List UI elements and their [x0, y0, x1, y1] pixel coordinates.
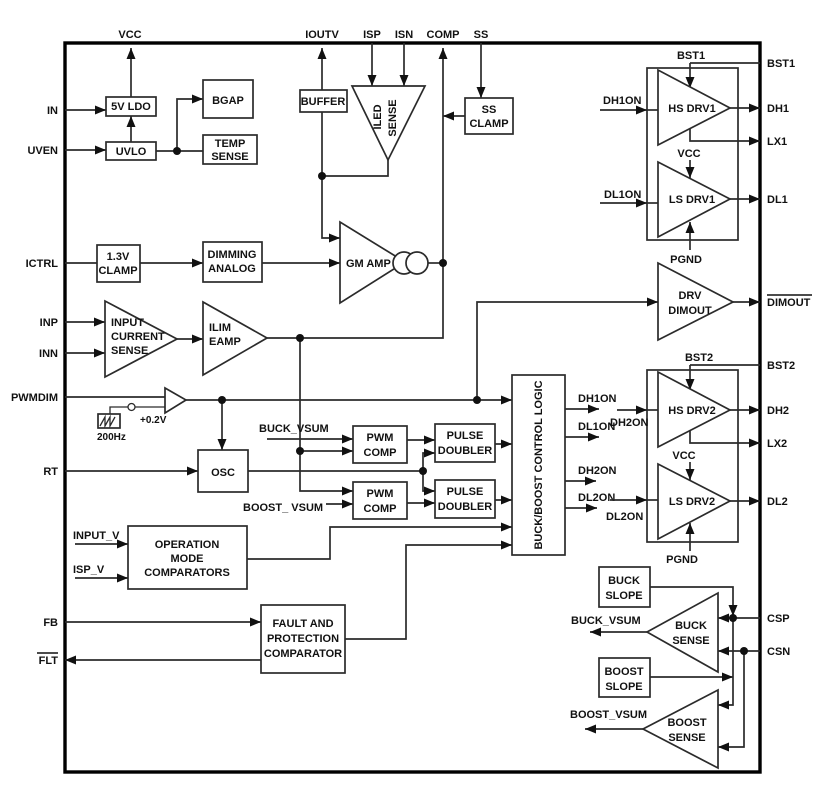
offset-node-icon [128, 404, 135, 411]
pin-isn: ISN [395, 29, 413, 41]
clamp-1v3-label: CLAMP [98, 265, 137, 277]
pin-isp: ISP [363, 29, 381, 41]
gm-amp-block: GM AMP [340, 222, 443, 303]
buck-vsum-label: BUCK_VSUM [259, 423, 329, 435]
osc-label: OSC [211, 467, 235, 479]
boost-sense-label: SENSE [668, 732, 705, 744]
ilim-eamp-label: ILIM [209, 322, 231, 334]
pins-right: BST1 DH1 LX1 DL1 DIMOUT BST2 DH2 LX2 DL2… [767, 58, 812, 658]
bst1-net-label: BST1 [677, 50, 705, 62]
boost-sense-amp [643, 690, 718, 768]
pins-top: VCC IOUTV ISP ISN COMP SS [118, 29, 488, 98]
sense-section: BUCK SLOPE BOOST SLOPE BUCK SENSE BUCK_V… [570, 567, 760, 768]
pin-fb: FB [43, 617, 58, 629]
driver2-block: BST2 HS DRV2 DH2ON VCC LS DRV2 DL2ON PGN… [606, 352, 760, 566]
pwm-comp1-label: COMP [364, 447, 397, 459]
buck-slope-label: BUCK [608, 575, 640, 587]
pin-uven: UVEN [27, 145, 58, 157]
input-current-sense-label: INPUT [111, 317, 144, 329]
boost-vsum-out-label: BOOST_VSUM [570, 709, 647, 721]
buffer-label: BUFFER [301, 96, 346, 108]
bgap-label: BGAP [212, 95, 244, 107]
temp-sense-label: SENSE [211, 151, 248, 163]
pin-lx2: LX2 [767, 438, 787, 450]
dh1on-in-label: DH1ON [603, 95, 642, 107]
pin-bst1: BST1 [767, 58, 795, 70]
dl1on-in-label: DL1ON [604, 189, 641, 201]
ic-block-diagram: VCC IOUTV ISP ISN COMP SS IN UVEN ICTRL … [0, 0, 820, 807]
buck-sense-label: SENSE [672, 635, 709, 647]
boost-slope-label: SLOPE [605, 681, 642, 693]
pin-csp: CSP [767, 613, 790, 625]
ss-clamp-label: CLAMP [469, 118, 508, 130]
pin-bst2: BST2 [767, 360, 795, 372]
dl2on-out-label: DL2ON [578, 492, 615, 504]
pulse-doubler1-label: DOUBLER [438, 445, 492, 457]
temp-sense-label: TEMP [215, 138, 246, 150]
bst2-net-label: BST2 [685, 352, 713, 364]
dimming-analog-label: DIMMING [208, 249, 257, 261]
dl2on-in-label: DL2ON [606, 511, 643, 523]
pin-dh2: DH2 [767, 405, 789, 417]
pulse-doubler2-label: PULSE [447, 486, 484, 498]
sawtooth-offset-label: +0.2V [140, 415, 167, 426]
control-logic-block: BUCK/BOOST CONTROL LOGIC DH1ON DL1ON DH2… [512, 375, 617, 555]
control-logic-label: BUCK/BOOST CONTROL LOGIC [533, 380, 545, 549]
pin-comp: COMP [427, 29, 460, 41]
op-mode-label: OPERATION [155, 539, 220, 551]
buck-vsum-out-label: BUCK_VSUM [571, 615, 641, 627]
pin-dimout: DIMOUT [767, 297, 811, 309]
dh2on-out-label: DH2ON [578, 465, 617, 477]
clamp-1v3-label: 1.3V [107, 251, 130, 263]
dh2on-in-label: DH2ON [610, 417, 649, 429]
fault-block: FAULT AND PROTECTION COMPARATOR [261, 545, 512, 673]
pwm-comp1-label: PWM [367, 432, 394, 444]
pgnd-net-label: PGND [666, 554, 698, 566]
pgnd-net-label: PGND [670, 254, 702, 266]
uvlo-label: UVLO [116, 146, 147, 158]
drv-dimout-label: DIMOUT [668, 305, 712, 317]
power-block: 5V LDO UVLO BGAP TEMP SENSE [106, 48, 257, 164]
hs-drv2-label: HS DRV2 [668, 405, 715, 417]
input-current-sense-label: SENSE [111, 345, 148, 357]
block-diagram-page: VCC IOUTV ISP ISN COMP SS IN UVEN ICTRL … [0, 0, 820, 807]
pin-dl2: DL2 [767, 496, 788, 508]
isp-v-label: ISP_V [73, 564, 105, 576]
iled-sense-label: SENSE [387, 99, 399, 136]
pin-in: IN [47, 105, 58, 117]
sawtooth-generator-icon [98, 414, 120, 428]
vcc-net-label: VCC [672, 450, 695, 462]
pin-rt: RT [43, 466, 58, 478]
input-v-label: INPUT_V [73, 530, 120, 542]
pin-dl1: DL1 [767, 194, 788, 206]
pin-csn: CSN [767, 646, 790, 658]
dh1on-out-label: DH1ON [578, 393, 617, 405]
pin-inp: INP [40, 317, 58, 329]
ilim-eamp-label: EAMP [209, 336, 241, 348]
buck-slope-label: SLOPE [605, 590, 642, 602]
pin-inn: INN [39, 348, 58, 360]
hs-drv1-label: HS DRV1 [668, 103, 715, 115]
dimming-chain: 1.3V CLAMP DIMMING ANALOG [97, 242, 340, 282]
pwm-comp2-label: PWM [367, 488, 394, 500]
op-mode-block: OPERATION MODE COMPARATORS INPUT_V ISP_V [73, 526, 512, 589]
pwmdim-comparator [165, 388, 186, 413]
ss-clamp-label: SS [482, 104, 497, 116]
pin-vcc: VCC [118, 29, 141, 41]
fault-label: FAULT AND [272, 618, 333, 630]
pin-dh1: DH1 [767, 103, 789, 115]
ls-drv2-label: LS DRV2 [669, 496, 715, 508]
boost-vsum-label: BOOST_ VSUM [243, 502, 323, 514]
sawtooth-freq-label: 200Hz [97, 432, 126, 443]
buck-sense-label: BUCK [675, 620, 707, 632]
driver1-block: BST1 HS DRV1 DH1ON VCC LS DRV1 DL1ON PGN… [600, 50, 760, 266]
iled-sense-label: ILED [372, 104, 384, 129]
fault-label: PROTECTION [267, 633, 339, 645]
gm-amp-label: GM AMP [346, 258, 391, 270]
ls-drv1-label: LS DRV1 [669, 194, 715, 206]
fault-label: COMPARATOR [264, 648, 342, 660]
boost-sense-label: BOOST [667, 717, 706, 729]
pin-ictrl: ICTRL [26, 258, 59, 270]
op-mode-label: COMPARATORS [144, 567, 230, 579]
pwm-comp2-label: COMP [364, 503, 397, 515]
vcc-net-label: VCC [677, 148, 700, 160]
pin-pwmdim: PWMDIM [11, 392, 58, 404]
ldo-label: 5V LDO [111, 101, 151, 113]
pin-flt: FLT [39, 655, 59, 667]
pulse-doubler2-label: DOUBLER [438, 501, 492, 513]
input-current-sense-label: CURRENT [111, 331, 165, 343]
op-mode-label: MODE [171, 553, 204, 565]
pulse-doubler1-label: PULSE [447, 430, 484, 442]
current-mirror-icon [406, 252, 428, 274]
pin-ss: SS [474, 29, 489, 41]
drv-dimout-label: DRV [678, 290, 702, 302]
dimming-analog-box [203, 242, 262, 282]
buck-sense-amp [647, 593, 718, 672]
pin-ioutv: IOUTV [305, 29, 339, 41]
boost-slope-label: BOOST [604, 666, 643, 678]
pin-lx1: LX1 [767, 136, 787, 148]
dimming-analog-label: ANALOG [208, 263, 256, 275]
